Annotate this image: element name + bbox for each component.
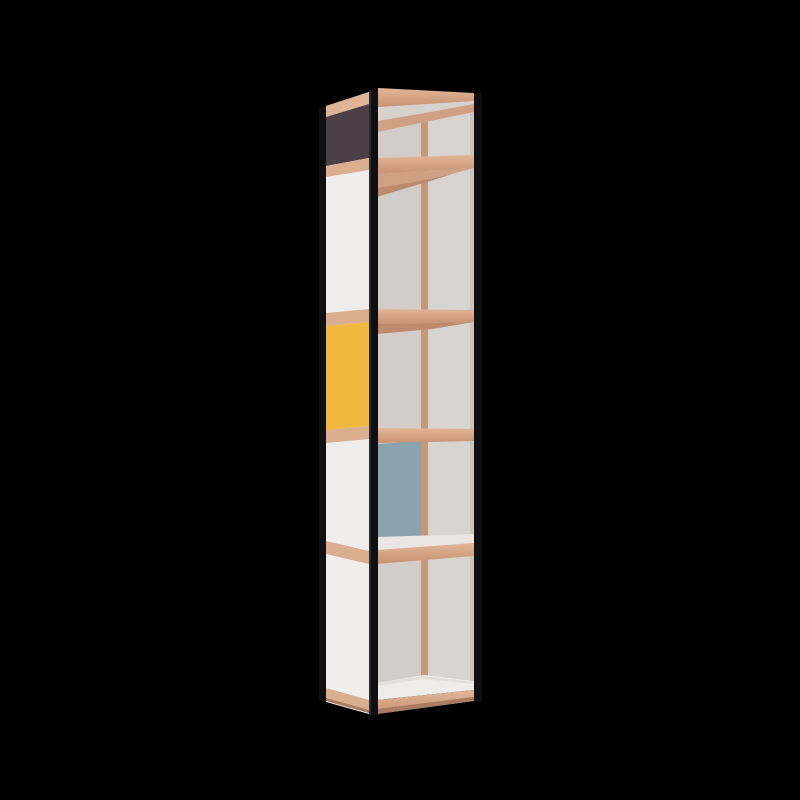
corner-post-sheen [369,90,371,715]
interior-blue-panel [378,441,421,542]
shelf-2-front-edge [377,309,474,324]
side-panel-yellow [326,322,369,430]
shelf-3-front-edge [377,428,474,443]
render-viewport [0,0,800,800]
left-frame-post [319,106,326,702]
interior-right-wall-sliver [470,100,474,690]
shelf-tower-render [0,0,800,800]
interior-corner-seam-post [421,108,428,680]
right-frame-post [474,92,482,702]
interior-back-right-plane [424,95,474,690]
